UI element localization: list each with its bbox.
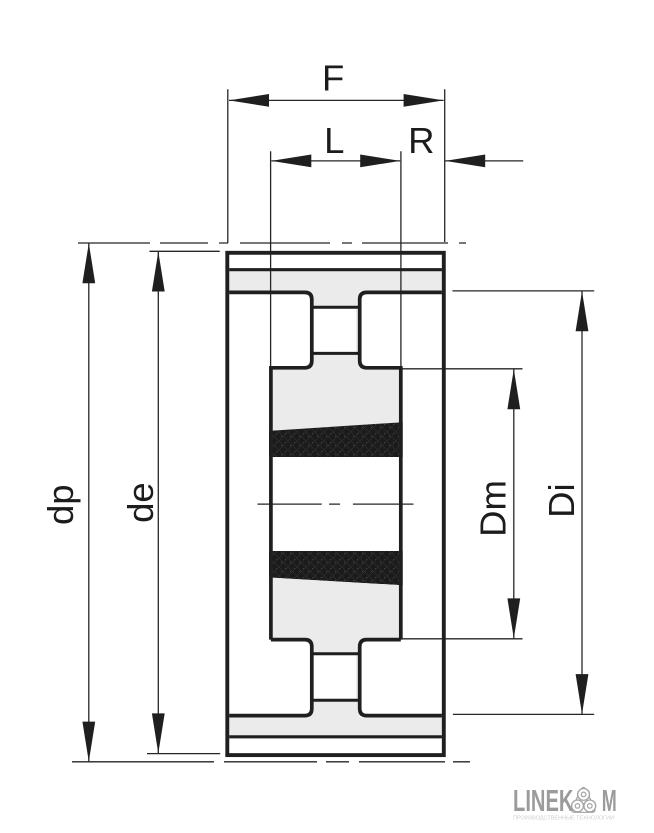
svg-text:Dm: Dm	[473, 480, 514, 537]
svg-text:Di: Di	[541, 483, 582, 517]
svg-text:LINEK: LINEK	[513, 783, 574, 818]
svg-text:F: F	[322, 57, 344, 98]
svg-text:dp: dp	[40, 484, 81, 525]
svg-text:R: R	[408, 120, 434, 161]
svg-text:de: de	[120, 482, 161, 523]
svg-text:ПРОИЗВОДСТВЕННЫЕ ТЕХНОЛОГИИ: ПРОИЗВОДСТВЕННЫЕ ТЕХНОЛОГИИ	[513, 815, 614, 821]
svg-text:M: M	[602, 783, 617, 818]
svg-text:L: L	[324, 120, 344, 161]
